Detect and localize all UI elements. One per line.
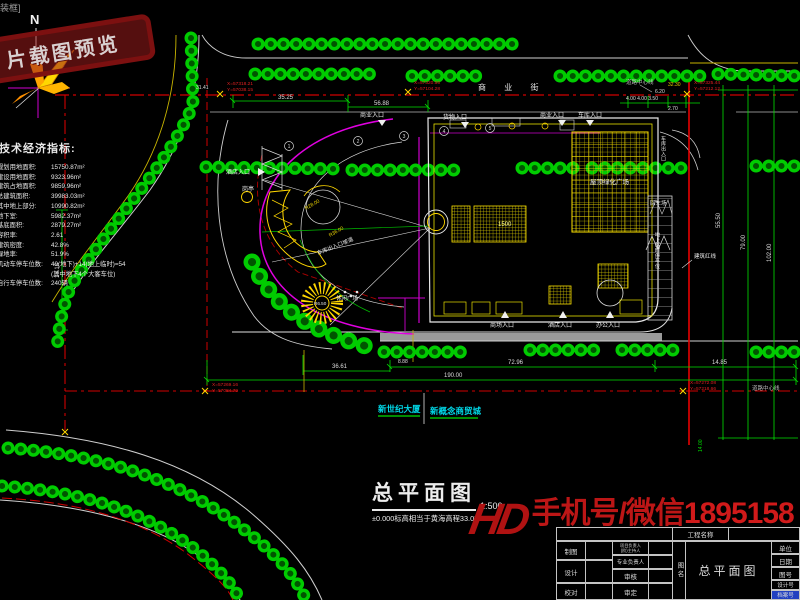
dim-label: 36.61 bbox=[332, 364, 348, 370]
road-centerline-label: 道路中心线 bbox=[752, 384, 780, 392]
guard-booth-label: 岗亭 bbox=[242, 185, 254, 193]
building-name-labels: 新世纪大厦 新概念商贸城 bbox=[378, 393, 482, 424]
coord-y: Y=57084.79 bbox=[212, 388, 238, 394]
dim-label: 79.00 bbox=[741, 234, 747, 250]
entrance-label: 酒店入口 bbox=[548, 321, 572, 329]
fountain-radius-label: R6.50 bbox=[314, 301, 327, 306]
dim-label: 32.30 bbox=[668, 82, 681, 88]
parking-strip bbox=[648, 196, 672, 320]
red-line-label: 建筑红线 bbox=[694, 252, 717, 260]
dim-label: 55.50 bbox=[716, 212, 722, 228]
coord-x: X=57325.44 bbox=[694, 80, 720, 86]
design-label: 设计 bbox=[556, 560, 586, 583]
building-name: 新概念商贸城 bbox=[430, 406, 482, 416]
titleblock-cell bbox=[648, 569, 673, 583]
titleblock-cell bbox=[648, 541, 673, 555]
indicator-row: 容积率:2.61 bbox=[0, 231, 130, 241]
dim-label: 8.88 bbox=[398, 359, 408, 365]
ramp-label: 车库出入口坡道 bbox=[316, 235, 355, 257]
north-label: N bbox=[30, 12, 39, 27]
proof-label: 校对 bbox=[556, 583, 586, 600]
indicator-title: 技术经济指标: bbox=[0, 140, 130, 156]
grid-bubble-numbers: 1 2 3 4 5 bbox=[288, 126, 492, 150]
indicator-row: 总建筑面积:39983.03m² bbox=[0, 192, 130, 202]
window-corner-text: 装框] bbox=[0, 1, 21, 14]
coord-y: Y=57218.66 bbox=[690, 386, 716, 392]
indicator-row: 自行车停车位数:240辆 bbox=[0, 279, 130, 289]
archive-no-label: 档案号 bbox=[771, 590, 800, 600]
titleblock-cell bbox=[728, 527, 800, 541]
indicator-row: 地下室:5982.37m² bbox=[0, 212, 130, 222]
fig-no-label: 图号 bbox=[771, 567, 800, 580]
cad-viewport: 1 2 3 4 5 X=57318.21 Y=57038.15 X=57320.… bbox=[0, 0, 800, 600]
dim-label: 35.25 bbox=[278, 95, 294, 101]
radius-label: R36.00 bbox=[328, 225, 345, 238]
building-outlines bbox=[424, 118, 658, 322]
watermark-phone: 18951580 bbox=[684, 497, 794, 530]
drawing-title: 总平面图 bbox=[372, 477, 476, 511]
date-label: 日期 bbox=[771, 554, 800, 567]
parking-label: 地上临时停车位 bbox=[654, 231, 660, 269]
grid-bubbles bbox=[285, 124, 495, 151]
dim-label: 56.88 bbox=[374, 101, 390, 107]
road-centerline-label: 道路中心线 bbox=[626, 78, 654, 86]
indicator-row: 建筑占地面积:9859.96m² bbox=[0, 182, 130, 192]
dim-label: 4.00 4.00 3.50 bbox=[626, 96, 658, 102]
entrance-label: 酒店入口 bbox=[226, 168, 250, 176]
drawing-name-value: 总平面图 bbox=[685, 541, 772, 600]
indicator-row: 绿地率:51.9% bbox=[0, 250, 130, 260]
dim-label: 72.96 bbox=[508, 360, 524, 366]
titleblock-cell bbox=[585, 583, 613, 600]
dim-label: 14.85 bbox=[712, 360, 728, 366]
turnaround-label: 回车场 bbox=[650, 199, 667, 207]
drawing-name-label: 图名 bbox=[672, 541, 686, 600]
dim-label: 6.20 bbox=[655, 89, 665, 95]
preview-stamp-text: 片载图预览 bbox=[4, 27, 122, 74]
coord-x: X=57320.55 bbox=[414, 80, 440, 86]
watermark-logo: HD bbox=[465, 494, 530, 546]
garage-entry-label: 车库出入口 bbox=[660, 135, 666, 162]
entrance-label: 商场入口 bbox=[490, 321, 514, 329]
bubble-number: 1 bbox=[288, 144, 291, 150]
review-label: 审核 bbox=[612, 569, 649, 583]
approve-label: 审定 bbox=[612, 583, 649, 600]
coord-y: Y=57038.15 bbox=[227, 87, 253, 93]
lead-label: 项目负责人(阶)主持人 bbox=[612, 541, 649, 555]
design-no-label: 设计号 bbox=[771, 580, 800, 590]
compass-petal bbox=[12, 88, 38, 104]
draw-label: 制图 bbox=[556, 541, 586, 560]
titleblock-cell bbox=[648, 555, 673, 569]
unit-label: 单位 bbox=[771, 541, 800, 554]
bubble-number: 5 bbox=[489, 126, 492, 132]
dim-label: 190.00 bbox=[444, 373, 463, 379]
coord-x: X=57272.08 bbox=[690, 380, 716, 386]
bubble-number: 4 bbox=[443, 129, 446, 135]
core-dim-label: 1500 bbox=[498, 222, 512, 228]
indicator-row: 其中地上部分:10990.82m² bbox=[0, 202, 130, 212]
bubble-number: 3 bbox=[403, 134, 406, 140]
street-name: 商 业 街 bbox=[478, 82, 546, 92]
roof-garden-label: 屋顶绿化广场 bbox=[590, 177, 630, 186]
bubble-number: 2 bbox=[357, 139, 360, 145]
indicator-row: 规划用地面积:15750.87m² bbox=[0, 163, 130, 173]
indicator-row: 建筑密度:42.8% bbox=[0, 241, 130, 251]
indicator-row: 建设用地面积:9323.96m² bbox=[0, 173, 130, 183]
entrance-label: 车库入口 bbox=[578, 111, 602, 119]
lead2-label: 专业负责人 bbox=[612, 555, 649, 569]
dim-label: 102.00 bbox=[767, 243, 773, 262]
coord-y: Y=57212.12 bbox=[694, 86, 720, 92]
titleblock-table: 工程名称 制图 设计 校对 项目负责人(阶)主持人 专业负责人 审核 审定 图名… bbox=[556, 527, 800, 600]
dim-label: 14.00 bbox=[698, 439, 704, 452]
project-name-label: 工程名称 bbox=[672, 527, 729, 541]
indicator-panel: 技术经济指标: 规划用地面积:15750.87m² 建设用地面积:9323.96… bbox=[0, 140, 130, 289]
titleblock-cell bbox=[648, 583, 673, 600]
coord-y: Y=57104.28 bbox=[414, 86, 440, 92]
titleblock-cell bbox=[585, 560, 613, 583]
building-name: 新世纪大厦 bbox=[378, 404, 421, 414]
dim-label: 31.41 bbox=[196, 85, 209, 91]
indicator-row: 基底面积:2879.27m² bbox=[0, 221, 130, 231]
dimension-lines bbox=[56, 85, 798, 440]
entrance-label: 商业入口 bbox=[540, 111, 564, 119]
titleblock-cell bbox=[556, 527, 673, 541]
plaza-label: 休闲广场 bbox=[336, 294, 359, 302]
titleblock-cell bbox=[585, 541, 613, 560]
coord-x: X=57269.16 bbox=[212, 382, 238, 388]
entrance-label: 商业入口 bbox=[360, 111, 384, 119]
entrance-label: 办公入口 bbox=[596, 321, 620, 329]
indicator-row: (其中地下4个大客车位) bbox=[0, 270, 130, 280]
dim-label: 2.70 bbox=[668, 106, 678, 112]
indicator-row: 机动车停车位数:40(地下)+14(地上临时)=54 bbox=[0, 260, 130, 270]
entrance-label: 货物入口 bbox=[443, 113, 467, 121]
coord-x: X=57318.21 bbox=[227, 81, 253, 87]
